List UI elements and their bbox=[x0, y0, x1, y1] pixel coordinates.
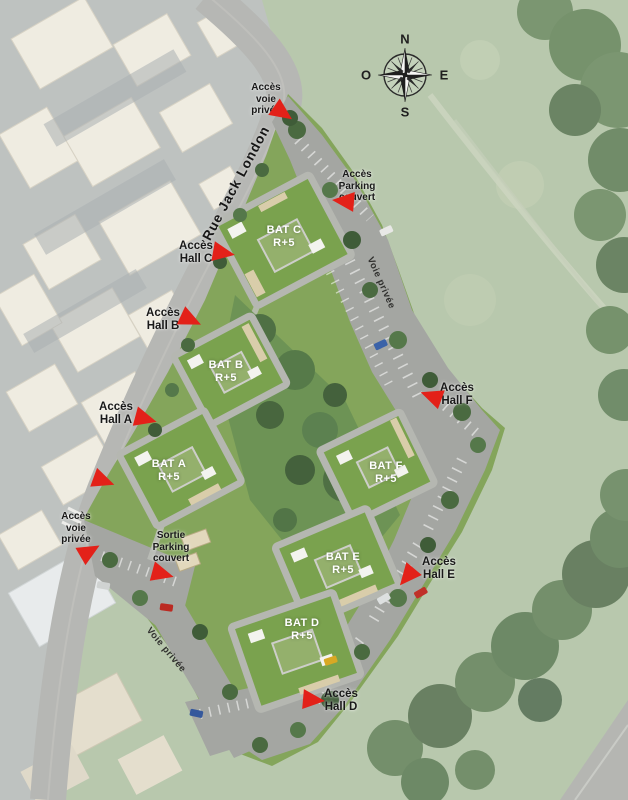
access-arrow-parking-couvert-icon bbox=[331, 190, 355, 212]
aerial-site-plan bbox=[0, 0, 628, 800]
access-arrow-hall-d-icon bbox=[302, 689, 326, 711]
access-arrow-hall-c-icon bbox=[211, 241, 236, 265]
site-plan-canvas: N E S O Rue Jack London Voie privée Voie… bbox=[0, 0, 628, 800]
